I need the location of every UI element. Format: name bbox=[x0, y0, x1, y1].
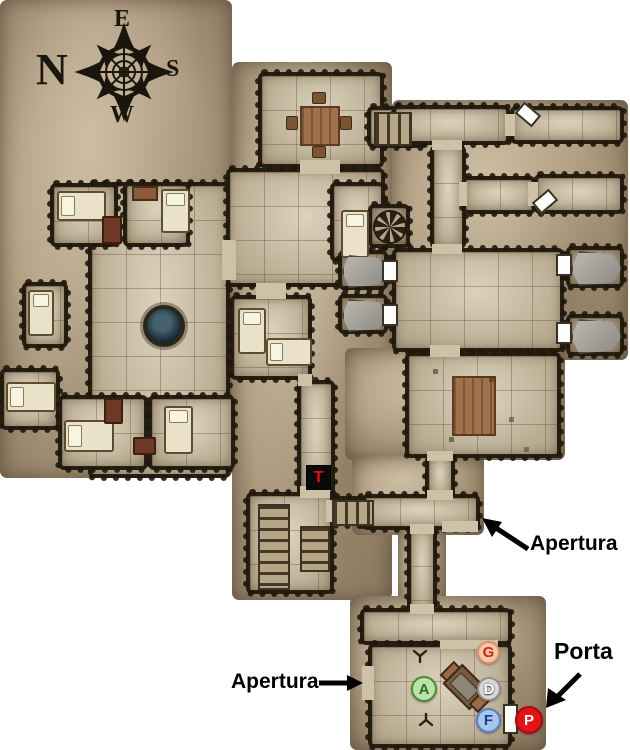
token-d[interactable]: D bbox=[477, 677, 501, 701]
stairs bbox=[374, 112, 412, 146]
stairs-bridge bbox=[332, 500, 374, 526]
long-table bbox=[452, 376, 496, 436]
bed bbox=[164, 406, 193, 454]
shelf bbox=[132, 186, 158, 201]
crypt-conn-corridor bbox=[462, 176, 536, 214]
crypt-block bbox=[392, 248, 564, 352]
brazier-icon bbox=[412, 648, 428, 664]
porta-arrow-icon bbox=[538, 668, 586, 714]
apertura-top-label: Apertura bbox=[530, 532, 618, 556]
trap-marker[interactable]: T bbox=[306, 465, 331, 490]
token-f[interactable]: F bbox=[476, 708, 501, 733]
bed bbox=[161, 189, 190, 233]
bed bbox=[238, 308, 266, 354]
token-a[interactable]: A bbox=[411, 676, 437, 702]
door bbox=[556, 322, 572, 344]
bed bbox=[28, 290, 54, 336]
token-g[interactable]: G bbox=[477, 641, 500, 664]
cross-corridor-v bbox=[407, 528, 437, 612]
bed bbox=[341, 210, 369, 258]
compass-star-icon bbox=[75, 22, 173, 122]
bed bbox=[57, 191, 106, 221]
chest bbox=[133, 437, 156, 455]
bed bbox=[266, 338, 312, 366]
well bbox=[143, 305, 185, 347]
chair bbox=[286, 116, 298, 130]
porta-label: Porta bbox=[554, 638, 613, 665]
dining-table bbox=[300, 106, 340, 146]
dungeon-map: N E S W T G A D F P Apertura Apertura Po… bbox=[0, 0, 630, 750]
apertura-opening-east bbox=[442, 521, 478, 532]
chest bbox=[102, 216, 122, 244]
door bbox=[556, 254, 572, 276]
door bbox=[382, 260, 398, 282]
apertura-bottom-arrow-icon bbox=[317, 672, 365, 694]
chair bbox=[340, 116, 352, 130]
stairs-short bbox=[300, 526, 330, 572]
chest bbox=[104, 398, 123, 424]
bed bbox=[64, 420, 114, 452]
compass-north-label: N bbox=[36, 44, 68, 95]
chair bbox=[312, 92, 326, 104]
spiral-stairs bbox=[373, 210, 407, 244]
stairs-long bbox=[258, 504, 290, 590]
chair bbox=[312, 146, 326, 158]
debris bbox=[430, 368, 433, 371]
apertura-top-arrow-icon bbox=[476, 512, 532, 554]
bed bbox=[6, 382, 56, 412]
door bbox=[382, 304, 398, 326]
brazier-icon bbox=[418, 712, 434, 728]
apertura-bottom-label: Apertura bbox=[231, 670, 319, 694]
